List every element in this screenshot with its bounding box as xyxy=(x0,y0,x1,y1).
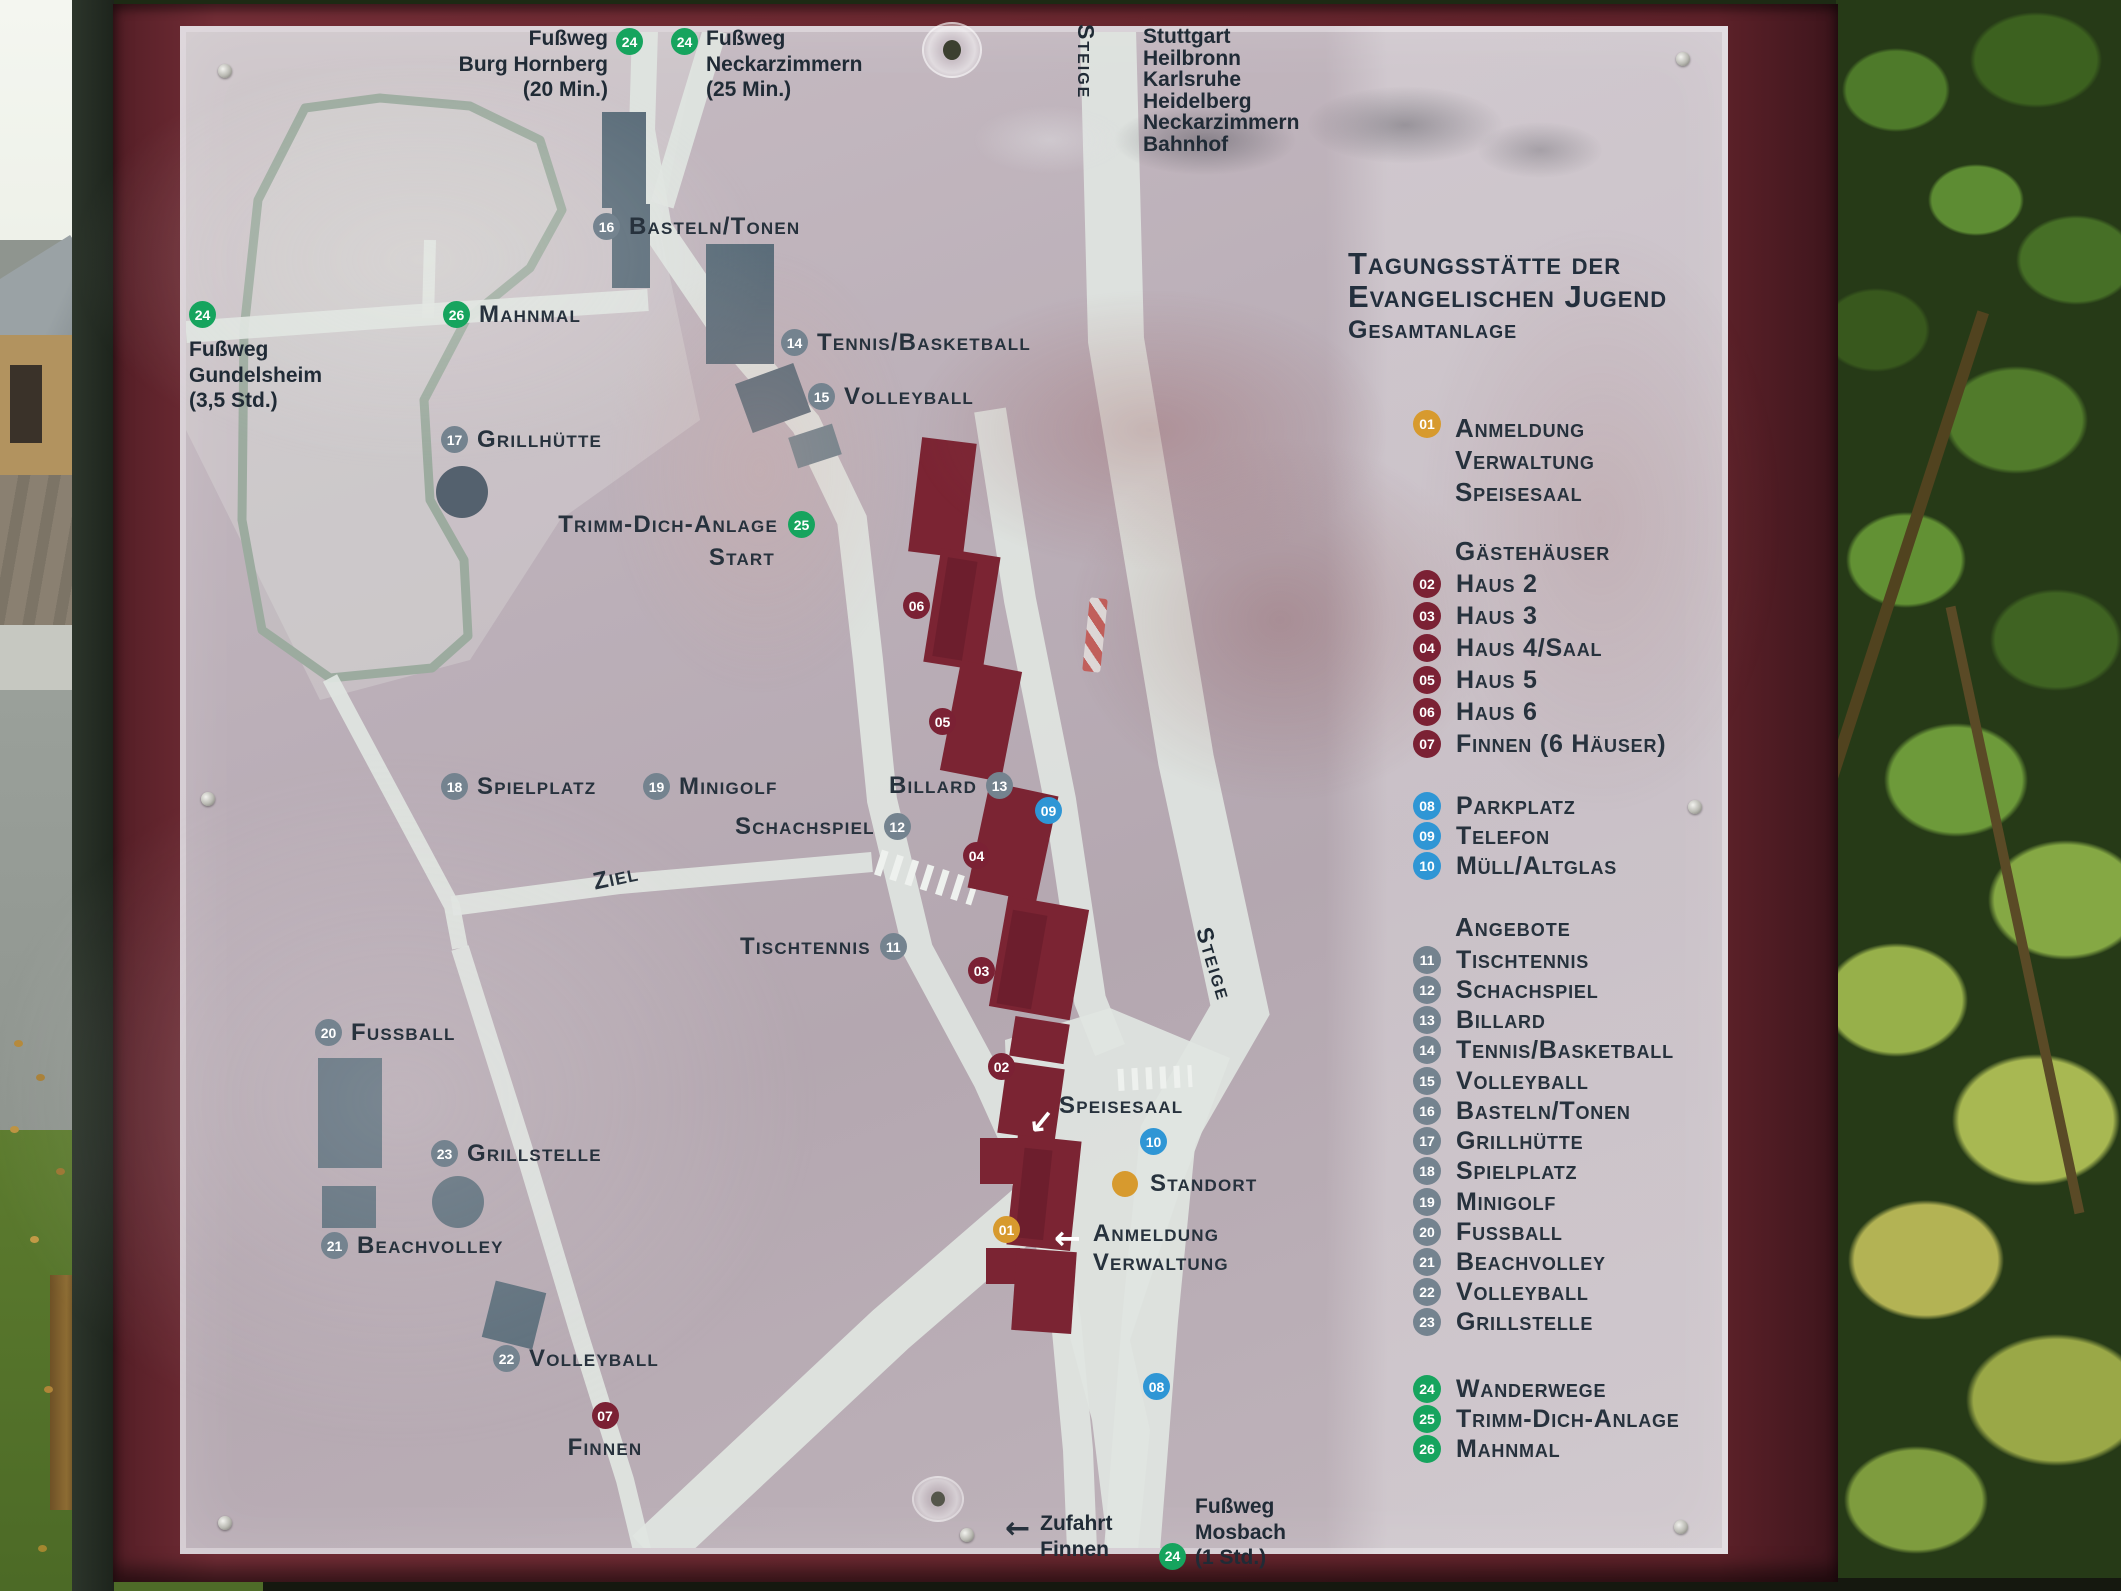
legend-text: Spielplatz xyxy=(1456,1159,1577,1184)
legend-badge: 11 xyxy=(1413,946,1441,974)
label-text: Tischtennis xyxy=(740,935,871,959)
legend-badge: 07 xyxy=(1413,730,1441,758)
label-text: Schachspiel xyxy=(735,815,875,839)
legend-row: 14Tennis/Basketball xyxy=(1413,1036,1674,1064)
legend-text: Tennis/Basketball xyxy=(1456,1038,1674,1063)
badge-16: 16 xyxy=(593,213,620,240)
legend-text: Basteln/Tonen xyxy=(1456,1099,1631,1124)
label-text: Fussball xyxy=(351,1021,456,1045)
map-label-schachspiel: Schachspiel 12 xyxy=(735,813,911,840)
legend-text: Trimm-Dich-Anlage xyxy=(1456,1407,1680,1432)
legend-badge: 17 xyxy=(1413,1127,1441,1155)
map-label-speisesaal: Speisesaal xyxy=(1059,1094,1183,1118)
badge-25: 25 xyxy=(788,511,815,538)
badge-12: 12 xyxy=(884,813,911,840)
legend-badge: 26 xyxy=(1413,1435,1441,1463)
tennis-court xyxy=(706,244,774,364)
legend-row: 15Volleyball xyxy=(1413,1067,1589,1095)
map-label-spielplatz: 18 Spielplatz xyxy=(441,773,596,800)
legend-row: 02Haus 2 xyxy=(1413,570,1538,598)
walk-mosbach: 24 Fußweg Mosbach (1 Std.) xyxy=(1159,1494,1286,1571)
screw-icon xyxy=(218,1516,232,1530)
legend-badge: 13 xyxy=(1413,1006,1441,1034)
photo-of-map-sign: Fußweg Burg Hornberg (20 Min.) 24 24 Fuß… xyxy=(0,0,2121,1591)
legend-text: Haus 5 xyxy=(1456,668,1538,693)
legend-text: Grillstelle xyxy=(1456,1310,1593,1335)
arrow-anmeldung-icon: ← xyxy=(1054,1222,1081,1254)
beachvolley-court xyxy=(322,1186,376,1228)
label-text: Basteln/Tonen xyxy=(629,215,800,239)
legend-row: 04Haus 4/Saal xyxy=(1413,634,1602,662)
legend-row: 08Parkplatz xyxy=(1413,792,1576,820)
legend-badge: 16 xyxy=(1413,1097,1441,1125)
badge-24: 24 xyxy=(616,28,643,55)
legend-text: Wanderwege xyxy=(1456,1377,1606,1402)
legend-text: Parkplatz xyxy=(1456,794,1576,819)
legend-badge: 06 xyxy=(1413,698,1441,726)
mahnmal-spur xyxy=(428,240,430,318)
legend-badge: 18 xyxy=(1413,1157,1441,1185)
legend-badge: 15 xyxy=(1413,1067,1441,1095)
label-text: Start xyxy=(520,546,775,570)
legend-text: Mahnmal xyxy=(1456,1437,1560,1462)
legend-row: 16Basteln/Tonen xyxy=(1413,1097,1631,1125)
legend-text: Fussball xyxy=(1456,1220,1563,1245)
legend-badge: 04 xyxy=(1413,634,1441,662)
legend-heading-angebote: Angebote xyxy=(1455,914,1571,940)
map-label-billard: Billard 13 xyxy=(889,772,1013,799)
label-text: Beachvolley xyxy=(357,1234,504,1258)
legend-row: 05Haus 5 xyxy=(1413,666,1538,694)
destination: Heilbronn xyxy=(1143,48,1299,70)
legend-badge: 12 xyxy=(1413,976,1441,1004)
map-label-minigolf: 19 Minigolf xyxy=(643,773,778,800)
badge-13: 13 xyxy=(986,772,1013,799)
legend-row: 24Wanderwege xyxy=(1413,1375,1606,1403)
legend-row: 13Billard xyxy=(1413,1006,1546,1034)
badge-06: 06 xyxy=(903,592,930,619)
destination: Heidelberg xyxy=(1143,91,1299,113)
badge-19: 19 xyxy=(643,773,670,800)
label-text: Volleyball xyxy=(529,1347,659,1371)
legend-text: Haus 4/Saal xyxy=(1456,636,1602,661)
legend-badge: 08 xyxy=(1413,792,1441,820)
legend-row: 11Tischtennis xyxy=(1413,946,1589,974)
walk-gundelsheim: 24 Fußweg Gundelsheim (3,5 Std.) xyxy=(189,301,322,414)
badge-22: 22 xyxy=(493,1345,520,1372)
map-label-volleyball22: 22 Volleyball xyxy=(493,1345,659,1372)
legend-row: 26Mahnmal xyxy=(1413,1435,1560,1463)
legend-badge: 25 xyxy=(1413,1405,1441,1433)
map-label-finnen: 07 Finnen xyxy=(535,1402,675,1460)
map-label-tischtennis: Tischtennis 11 xyxy=(740,933,907,960)
badge-14: 14 xyxy=(781,329,808,356)
ziel-path xyxy=(452,862,872,906)
sign-title-line1: Tagungsstätte der xyxy=(1348,248,1621,279)
badge-03: 03 xyxy=(968,957,995,984)
legend-heading-guesthouses: Gästehäuser xyxy=(1455,538,1610,564)
walk-line: Gundelsheim xyxy=(189,363,322,389)
badge-15: 15 xyxy=(808,383,835,410)
walk-line: Zufahrt xyxy=(1040,1511,1112,1537)
destination: Karlsruhe xyxy=(1143,69,1299,91)
label-text: Minigolf xyxy=(679,775,778,799)
walk-line: Neckarzimmern xyxy=(706,52,862,78)
walk-line: Fußweg xyxy=(450,26,608,52)
walk-line: (1 Std.) xyxy=(1195,1545,1286,1571)
map-label-fussball: 20 Fussball xyxy=(315,1019,456,1046)
map-label-anmeldung: ← Anmeldung Verwaltung xyxy=(1054,1220,1229,1278)
label-text: Volleyball xyxy=(844,385,974,409)
legend-badge: 24 xyxy=(1413,1375,1441,1403)
legend-text: Speisesaal xyxy=(1455,476,1595,508)
loop-connector xyxy=(330,678,460,948)
legend-badge: 20 xyxy=(1413,1218,1441,1246)
legend-row: 09Telefon xyxy=(1413,822,1550,850)
label-text: Speisesaal xyxy=(1059,1094,1183,1118)
label-text: Standort xyxy=(1150,1172,1257,1196)
badge-09: 09 xyxy=(1035,797,1062,824)
walk-line: Fußweg xyxy=(189,337,322,363)
basteln-building xyxy=(602,112,646,208)
badge-26: 26 xyxy=(443,301,470,328)
walk-line: Burg Hornberg xyxy=(450,52,608,78)
legend-text: Grillhütte xyxy=(1456,1129,1583,1154)
walk-neckarzimmern: 24 Fußweg Neckarzimmern (25 Min.) xyxy=(671,26,862,103)
badge-10: 10 xyxy=(1140,1128,1167,1155)
map-label-grillhuette: 17 Grillhütte xyxy=(441,426,602,453)
label-text: Trimm-Dich-Anlage xyxy=(558,513,778,537)
label-text: Verwaltung xyxy=(1093,1249,1229,1278)
map-label-trimm: Trimm-Dich-Anlage 25 Start xyxy=(520,511,815,570)
screw-icon xyxy=(1676,52,1690,66)
legend-row: 19Minigolf xyxy=(1413,1188,1556,1216)
legend-text: Billard xyxy=(1456,1008,1546,1033)
badge-11: 11 xyxy=(880,933,907,960)
legend-badge: 22 xyxy=(1413,1278,1441,1306)
walk-line: (3,5 Std.) xyxy=(189,388,322,414)
legend-reception: Anmeldung Verwaltung Speisesaal xyxy=(1455,412,1595,508)
badge-24: 24 xyxy=(189,301,216,328)
legend-badge: 19 xyxy=(1413,1188,1441,1216)
label-text: Grillhütte xyxy=(477,428,602,452)
badge-05: 05 xyxy=(929,708,956,735)
walk-line: Fußweg xyxy=(706,26,862,52)
legend-row: 17Grillhütte xyxy=(1413,1127,1583,1155)
badge-01: 01 xyxy=(993,1216,1020,1243)
screw-icon xyxy=(960,1528,974,1542)
street-label-steige-top: Steige xyxy=(1072,24,1099,99)
screw-icon xyxy=(1688,800,1702,814)
screw-icon xyxy=(201,792,215,806)
legend-text: Finnen (6 Häuser) xyxy=(1456,732,1666,757)
legend-badge: 21 xyxy=(1413,1248,1441,1276)
legend-text: Tischtennis xyxy=(1456,948,1589,973)
grillhuette-circle xyxy=(436,466,488,518)
legend-badge: 23 xyxy=(1413,1308,1441,1336)
badge-24: 24 xyxy=(671,28,698,55)
walk-line: (25 Min.) xyxy=(706,77,862,103)
badge-08: 08 xyxy=(1143,1373,1170,1400)
map-label-mahnmal: 26 Mahnmal xyxy=(443,301,581,328)
screw-icon xyxy=(1674,1520,1688,1534)
map-label-basteln: 16 Basteln/Tonen xyxy=(593,213,800,240)
badge-18: 18 xyxy=(441,773,468,800)
legend-text: Volleyball xyxy=(1456,1280,1589,1305)
legend-row: 21Beachvolley xyxy=(1413,1248,1606,1276)
standort-dot-icon xyxy=(1112,1171,1138,1197)
badge-17: 17 xyxy=(441,426,468,453)
legend-badge: 14 xyxy=(1413,1036,1441,1064)
legend-row: 25Trimm-Dich-Anlage xyxy=(1413,1405,1680,1433)
legend-badge: 02 xyxy=(1413,570,1441,598)
map-label-beachvolley: 21 Beachvolley xyxy=(321,1232,504,1259)
legend-text: Müll/Altglas xyxy=(1456,854,1617,879)
label-text: Finnen xyxy=(568,1436,643,1460)
legend-badge: 10 xyxy=(1413,852,1441,880)
label-text: Anmeldung xyxy=(1093,1220,1229,1249)
legend-text: Haus 3 xyxy=(1456,604,1538,629)
legend-text: Volleyball xyxy=(1456,1069,1589,1094)
sign-subtitle: Gesamtanlage xyxy=(1348,318,1517,343)
legend-row: 22Volleyball xyxy=(1413,1278,1589,1306)
destination: Neckarzimmern xyxy=(1143,112,1299,134)
legend-row: 18Spielplatz xyxy=(1413,1157,1577,1185)
legend-row: 03Haus 3 xyxy=(1413,602,1538,630)
walk-line: Finnen xyxy=(1040,1537,1112,1563)
destination: Stuttgart xyxy=(1143,26,1299,48)
grillstelle-circle xyxy=(432,1176,484,1228)
walk-line: Fußweg xyxy=(1195,1494,1286,1520)
legend-badge: 05 xyxy=(1413,666,1441,694)
destination: Bahnhof xyxy=(1143,134,1299,156)
legend-badge: 09 xyxy=(1413,822,1441,850)
suction-cup-center xyxy=(931,1492,945,1507)
legend-row: 06Haus 6 xyxy=(1413,698,1538,726)
fussball-field xyxy=(318,1058,382,1168)
legend-text: Haus 2 xyxy=(1456,572,1538,597)
legend-row: 07Finnen (6 Häuser) xyxy=(1413,730,1666,758)
legend-row: 23Grillstelle xyxy=(1413,1308,1593,1336)
label-text: Spielplatz xyxy=(477,775,596,799)
badge-20: 20 xyxy=(315,1019,342,1046)
legend-badge: 03 xyxy=(1413,602,1441,630)
destinations-list: Stuttgart Heilbronn Karlsruhe Heidelberg… xyxy=(1143,26,1299,155)
legend-row: 20Fussball xyxy=(1413,1218,1563,1246)
map-label-grillstelle: 23 Grillstelle xyxy=(431,1140,602,1167)
zufahrt-road xyxy=(650,1190,1052,1555)
badge-02: 02 xyxy=(988,1053,1015,1080)
label-text: Tennis/Basketball xyxy=(817,331,1031,355)
walk-line: (20 Min.) xyxy=(450,77,608,103)
arrow-zufahrt-icon: ← xyxy=(1005,1514,1030,1544)
label-text: Mahnmal xyxy=(479,303,581,327)
walk-hornberg: Fußweg Burg Hornberg (20 Min.) 24 xyxy=(450,26,643,103)
legend-row: 10Müll/Altglas xyxy=(1413,852,1617,880)
suction-cup xyxy=(912,1476,964,1522)
suction-cup-center xyxy=(943,40,961,60)
badge-23: 23 xyxy=(431,1140,458,1167)
legend-text: Haus 6 xyxy=(1456,700,1538,725)
map-label-standort: Standort xyxy=(1112,1171,1257,1197)
label-text: Billard xyxy=(889,774,977,798)
legend-badge-01: 01 xyxy=(1413,410,1441,438)
badge-21: 21 xyxy=(321,1232,348,1259)
label-text: Grillstelle xyxy=(467,1142,602,1166)
legend-text: Anmeldung xyxy=(1455,412,1595,444)
badge-24: 24 xyxy=(1159,1543,1186,1570)
walk-line: Mosbach xyxy=(1195,1520,1286,1546)
map-label-volleyball15: 15 Volleyball xyxy=(808,383,974,410)
site-map-graphic xyxy=(0,0,2121,1591)
legend-text: Telefon xyxy=(1456,824,1550,849)
legend-text: Minigolf xyxy=(1456,1190,1556,1215)
badge-04: 04 xyxy=(963,842,990,869)
screw-icon xyxy=(218,64,232,78)
legend-text: Beachvolley xyxy=(1456,1250,1606,1275)
legend-text: Verwaltung xyxy=(1455,444,1595,476)
volleyball-court-22 xyxy=(482,1281,546,1350)
map-label-tennis: 14 Tennis/Basketball xyxy=(781,329,1031,356)
sign-title-line2: Evangelischen Jugend xyxy=(1348,281,1667,312)
suction-cup xyxy=(922,22,982,78)
legend-row: 12Schachspiel xyxy=(1413,976,1598,1004)
badge-07: 07 xyxy=(592,1402,619,1429)
legend-text: Schachspiel xyxy=(1456,978,1598,1003)
walk-zufahrt: ← Zufahrt Finnen xyxy=(1005,1511,1112,1562)
arrow-speisesaal-icon: ↙ xyxy=(1026,1105,1056,1140)
